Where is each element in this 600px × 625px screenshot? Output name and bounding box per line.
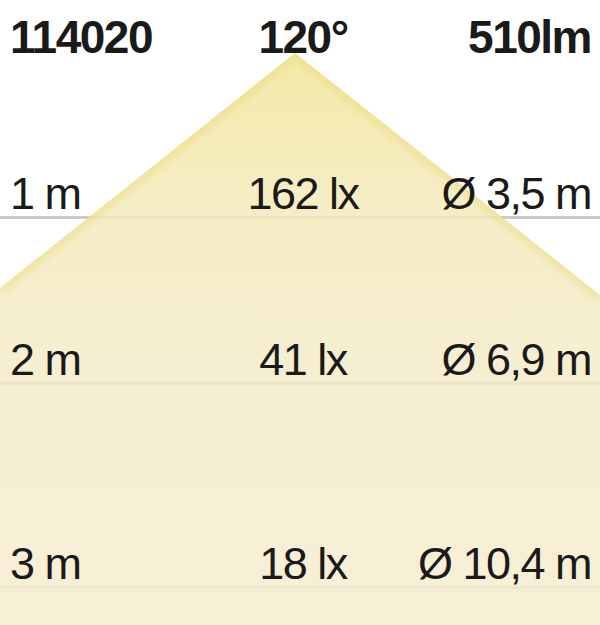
distance-label-1m: 1 m [10, 171, 81, 216]
light-beam-cone [0, 0, 600, 625]
article-number: 114020 [10, 14, 152, 60]
beam-diameter-value-2m: Ø 6,9 m [441, 337, 591, 382]
beam-diameter-value-3m: Ø 10,4 m [418, 541, 591, 586]
distance-label-2m: 2 m [10, 337, 81, 382]
illuminance-value-3m: 18 lx [259, 541, 347, 586]
beam-diameter-value-1m: Ø 3,5 m [441, 171, 591, 216]
illuminance-value-2m: 41 lx [259, 337, 347, 382]
beam-diagram: 114020 120° 510lm 1 m 162 lx Ø 3,5 m 2 m… [0, 0, 600, 625]
illuminance-value-1m: 162 lx [247, 171, 358, 216]
beam-angle-label: 120° [258, 14, 347, 60]
luminous-flux-label: 510lm [468, 14, 591, 60]
distance-label-3m: 3 m [10, 541, 81, 586]
